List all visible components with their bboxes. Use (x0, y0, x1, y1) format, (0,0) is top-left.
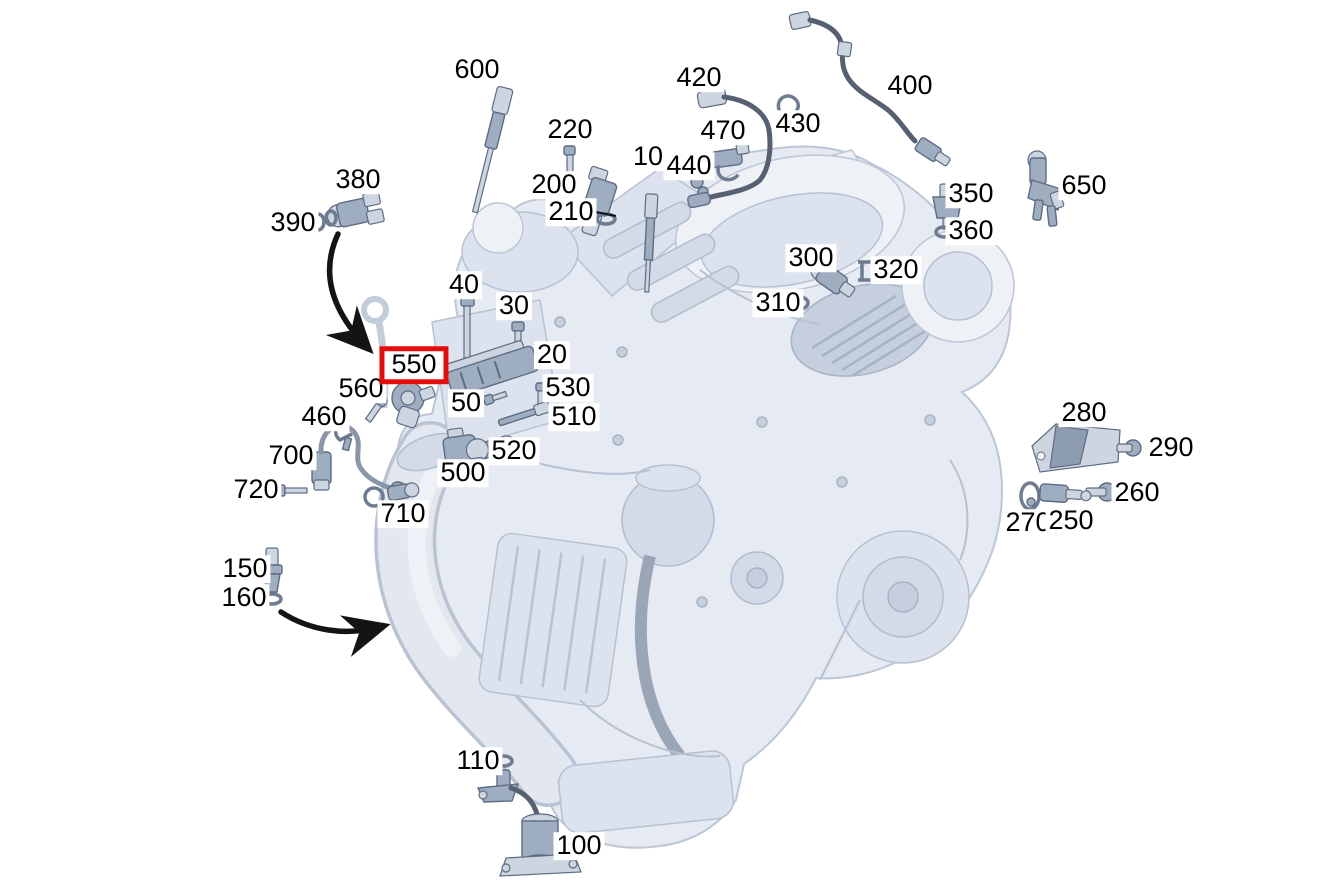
callout-710[interactable]: 710 (377, 500, 428, 528)
callout-10[interactable]: 10 (630, 143, 666, 171)
callout-430[interactable]: 430 (772, 110, 823, 138)
callout-530[interactable]: 530 (542, 374, 593, 402)
callout-280[interactable]: 280 (1058, 399, 1109, 427)
callout-650[interactable]: 650 (1058, 172, 1109, 200)
callout-50[interactable]: 50 (448, 389, 484, 417)
callout-360[interactable]: 360 (945, 217, 996, 245)
part-icon-290[interactable] (1117, 440, 1141, 456)
callout-320[interactable]: 320 (870, 256, 921, 284)
callout-380[interactable]: 380 (332, 166, 383, 194)
callout-300[interactable]: 300 (785, 244, 836, 272)
arrow-380-to-550 (330, 234, 366, 346)
diagram-canvas: 6004204004304702201044065020038035021039… (0, 0, 1326, 881)
callout-440[interactable]: 440 (663, 152, 714, 180)
callout-290[interactable]: 290 (1145, 434, 1196, 462)
part-icon-600[interactable] (467, 86, 513, 214)
callout-210[interactable]: 210 (545, 198, 596, 226)
callout-500[interactable]: 500 (437, 459, 488, 487)
callout-600[interactable]: 600 (451, 56, 502, 84)
arrow-160-to-engine (281, 612, 380, 631)
callout-700[interactable]: 700 (265, 442, 316, 470)
callout-550[interactable]: 550 (379, 346, 448, 384)
callout-720[interactable]: 720 (230, 476, 281, 504)
part-icon-270[interactable] (1021, 483, 1039, 509)
callout-260[interactable]: 260 (1111, 479, 1162, 507)
annotation-arrows (281, 234, 380, 631)
callout-220[interactable]: 220 (544, 116, 595, 144)
callout-310[interactable]: 310 (752, 289, 803, 317)
callout-150[interactable]: 150 (219, 555, 270, 583)
callout-420[interactable]: 420 (673, 64, 724, 92)
callout-100[interactable]: 100 (553, 832, 604, 860)
callout-200[interactable]: 200 (528, 171, 579, 199)
part-icon-250[interactable] (1039, 484, 1091, 505)
callout-350[interactable]: 350 (945, 180, 996, 208)
callout-110[interactable]: 110 (453, 747, 502, 775)
callout-470[interactable]: 470 (697, 117, 748, 145)
callout-250[interactable]: 250 (1045, 507, 1096, 535)
callout-510[interactable]: 510 (548, 403, 599, 431)
callout-520[interactable]: 520 (488, 437, 539, 465)
callout-20[interactable]: 20 (534, 341, 570, 369)
callout-460[interactable]: 460 (298, 403, 349, 431)
callout-400[interactable]: 400 (884, 72, 935, 100)
callout-390[interactable]: 390 (267, 209, 318, 237)
callout-30[interactable]: 30 (496, 292, 532, 320)
engine-illustration (364, 135, 1014, 847)
callout-160[interactable]: 160 (218, 584, 269, 612)
callout-40[interactable]: 40 (446, 271, 482, 299)
part-icon-280[interactable] (1032, 424, 1120, 472)
